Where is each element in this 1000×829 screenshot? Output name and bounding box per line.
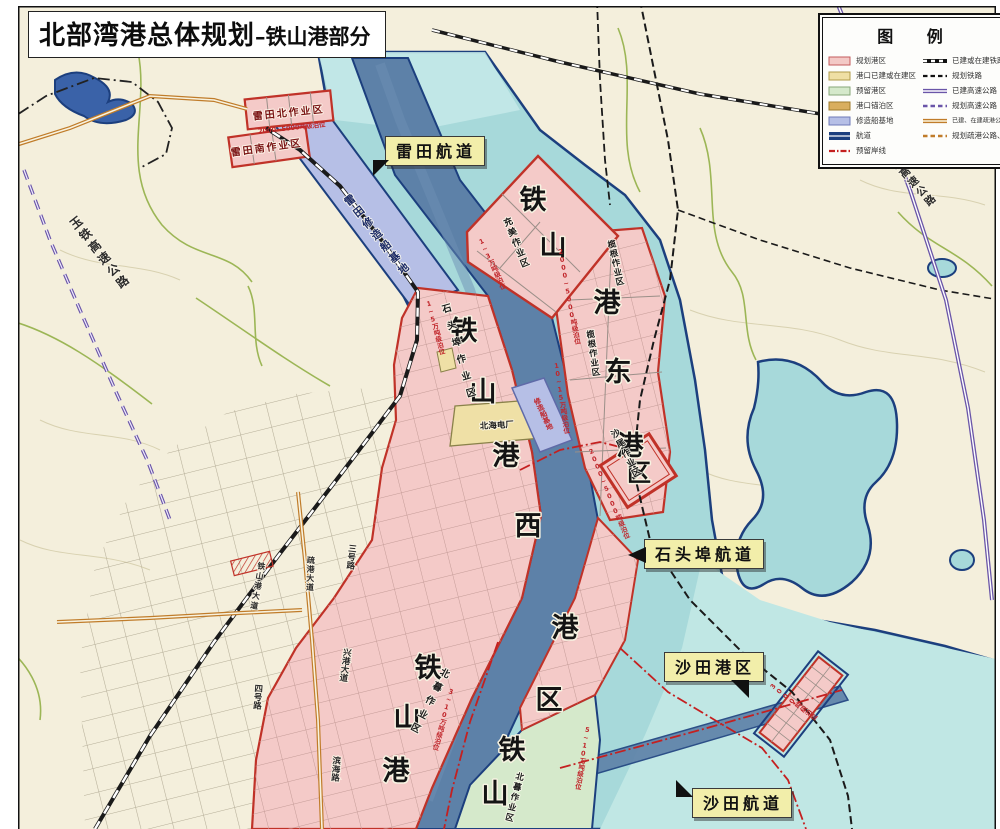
reserved-shoreline-swatch xyxy=(828,146,852,156)
legend-item-reserved-shoreline: 预留岸线 xyxy=(828,144,916,157)
legend-item-channel: 航道 xyxy=(828,129,916,142)
reserved-port-swatch xyxy=(828,86,852,96)
legend-item-anchorage: 港口锚泊区 xyxy=(828,99,916,112)
big-label-south-1: 山 xyxy=(482,779,509,810)
legend-area-column: 规划港区 港口已建或在建区 预留港区 港口锚泊区 修造船基地 航道 预留岸线 xyxy=(828,52,916,159)
callout-pointer-icon xyxy=(628,547,646,563)
callout-pointer-icon xyxy=(373,160,389,176)
page-title-sub: –铁山港部分 xyxy=(255,24,371,49)
small-lake-2 xyxy=(950,550,974,570)
callout-leitian-channel: 雷田航道 xyxy=(385,136,485,166)
port-road-planned-swatch xyxy=(922,131,948,141)
legend-line-column: 已建或在建铁路 规划铁路 已建高速公路 规划高速公路 已建、在建疏港公路和道路 … xyxy=(922,52,1000,159)
port-road-built-swatch xyxy=(922,116,948,126)
callout-shatian-port: 沙田港区 xyxy=(664,652,764,682)
channel-swatch xyxy=(828,131,852,141)
label-shugang-avenue: 疏港大道 xyxy=(304,555,315,592)
shipyard-swatch xyxy=(828,116,852,126)
legend-item-port-road-planned: 规划疏港公路、道路 xyxy=(922,129,1000,142)
legend: 图 例 规划港区 港口已建或在建区 预留港区 港口锚泊区 修造船基地 航道 xyxy=(818,13,1000,169)
big-label-east-0: 港 xyxy=(594,288,622,319)
big-label-west-3: 西 xyxy=(515,511,542,542)
callout-shitoubu-channel: 石头埠航道 xyxy=(644,539,764,569)
legend-item-railway-built: 已建或在建铁路 xyxy=(922,54,1000,67)
legend-item-built-port: 港口已建或在建区 xyxy=(828,69,916,82)
big-label-sw-2: 港 xyxy=(383,756,411,787)
legend-item-port-road-built: 已建、在建疏港公路和道路 xyxy=(922,114,1000,127)
big-label-south-0: 铁 xyxy=(499,735,526,766)
page-title: 北部湾港总体规划 xyxy=(39,21,255,51)
big-label-west-5: 区 xyxy=(536,685,563,716)
map-page: 铁 山 港 东 港 区 铁 山 港 西 港 区 铁 山 港 铁 山 雷田北作业区… xyxy=(0,0,1000,829)
callout-pointer-icon xyxy=(676,780,693,797)
big-label-west-2: 港 xyxy=(493,441,521,472)
planned-port-swatch xyxy=(828,56,852,66)
legend-item-expressway-built: 已建高速公路 xyxy=(922,84,1000,97)
legend-item-expressway-planned: 规划高速公路 xyxy=(922,99,1000,112)
legend-item-reserved-port: 预留港区 xyxy=(828,84,916,97)
railway-planned-swatch xyxy=(922,71,948,81)
built-port-swatch xyxy=(828,71,852,81)
anchorage-swatch xyxy=(828,101,852,111)
map-title-box: 北部湾港总体规划–铁山港部分 xyxy=(28,11,386,58)
legend-item-planned-port: 规划港区 xyxy=(828,54,916,67)
railway-built-swatch xyxy=(922,56,948,66)
big-label-ne-0: 铁 xyxy=(520,185,547,216)
expressway-planned-swatch xyxy=(922,101,948,111)
big-label-east-1: 东 xyxy=(605,356,632,388)
legend-item-shipyard: 修造船基地 xyxy=(828,114,916,127)
expressway-built-swatch xyxy=(922,86,948,96)
callout-pointer-icon xyxy=(731,680,749,698)
legend-item-railway-planned: 规划铁路 xyxy=(922,69,1000,82)
big-label-west-4: 港 xyxy=(552,613,580,644)
label-power-plant: 北海电厂 xyxy=(480,419,515,432)
callout-shatian-channel: 沙田航道 xyxy=(692,788,792,818)
legend-title: 图 例 xyxy=(836,23,998,47)
